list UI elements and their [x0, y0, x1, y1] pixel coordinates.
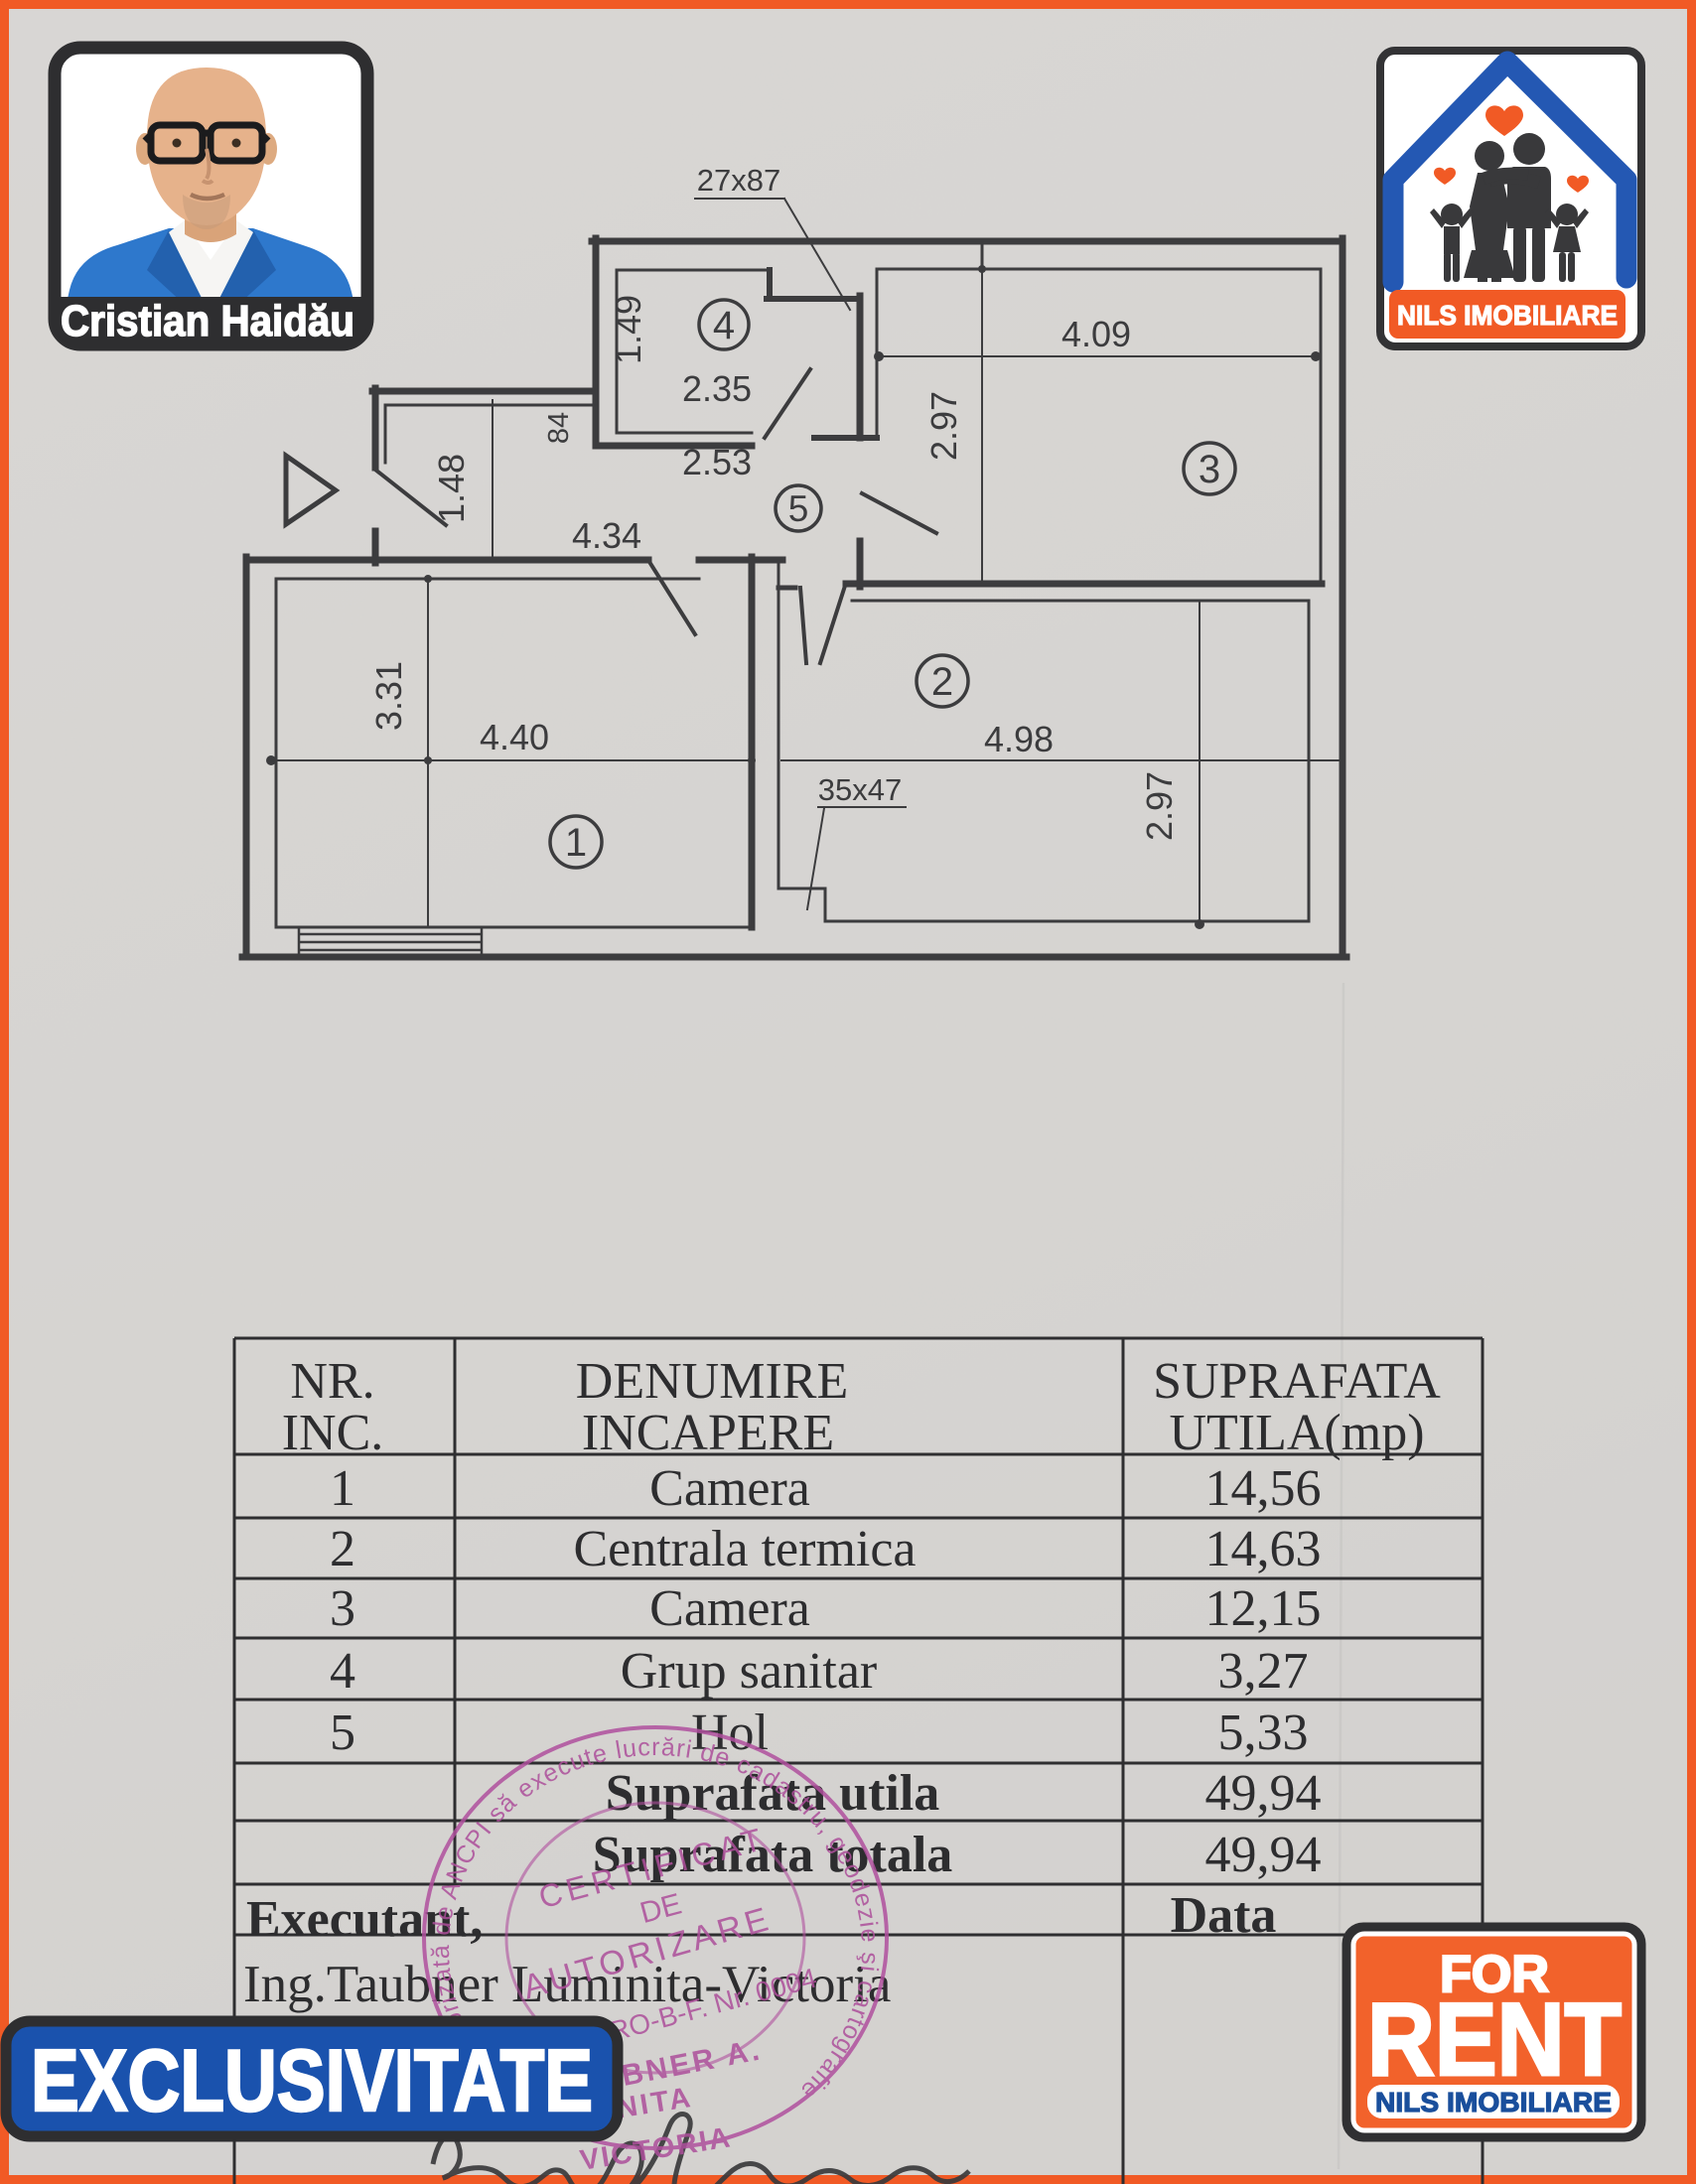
svg-text:4.98: 4.98 — [984, 719, 1054, 759]
svg-text:2.35: 2.35 — [682, 368, 752, 409]
svg-text:Centrala termica: Centrala termica — [573, 1521, 916, 1577]
svg-text:DENUMIRE: DENUMIRE — [576, 1353, 848, 1410]
svg-text:2: 2 — [330, 1521, 355, 1577]
svg-text:3.31: 3.31 — [368, 661, 409, 731]
svg-text:5,33: 5,33 — [1218, 1705, 1309, 1761]
svg-text:Data: Data — [1171, 1887, 1277, 1944]
svg-text:5: 5 — [788, 488, 809, 529]
svg-text:1.49: 1.49 — [608, 295, 648, 364]
svg-text:4.09: 4.09 — [1061, 314, 1131, 354]
svg-text:NR.: NR. — [290, 1353, 374, 1410]
svg-text:5: 5 — [330, 1705, 355, 1761]
svg-text:INC.: INC. — [282, 1405, 384, 1461]
svg-text:SUPRAFATA: SUPRAFATA — [1153, 1353, 1441, 1410]
svg-text:49,94: 49,94 — [1205, 1765, 1322, 1822]
svg-text:3: 3 — [330, 1580, 355, 1637]
svg-text:12,15: 12,15 — [1205, 1580, 1322, 1637]
svg-text:2.53: 2.53 — [682, 442, 752, 482]
svg-text:NILS IMOBILIARE: NILS IMOBILIARE — [1375, 2087, 1612, 2117]
svg-text:3,27: 3,27 — [1218, 1643, 1309, 1700]
svg-text:1: 1 — [330, 1460, 355, 1517]
svg-text:Cristian Haidău: Cristian Haidău — [61, 297, 354, 345]
svg-text:14,63: 14,63 — [1205, 1521, 1322, 1577]
svg-text:27x87: 27x87 — [697, 163, 780, 198]
svg-text:Grup sanitar: Grup sanitar — [621, 1643, 877, 1700]
svg-text:EXCLUSIVITATE: EXCLUSIVITATE — [31, 2031, 593, 2129]
svg-text:Camera: Camera — [649, 1580, 810, 1637]
svg-text:1.48: 1.48 — [431, 454, 472, 523]
svg-text:4: 4 — [330, 1643, 355, 1700]
svg-text:Camera: Camera — [649, 1460, 810, 1517]
svg-text:2.97: 2.97 — [1139, 771, 1180, 841]
svg-text:3: 3 — [1199, 448, 1220, 491]
svg-text:4: 4 — [713, 304, 735, 347]
svg-text:49,94: 49,94 — [1205, 1827, 1322, 1883]
svg-text:2.97: 2.97 — [923, 391, 964, 461]
svg-text:UTILA(mp): UTILA(mp) — [1169, 1405, 1424, 1461]
svg-text:4.34: 4.34 — [572, 515, 641, 556]
svg-text:35x47: 35x47 — [818, 772, 902, 807]
svg-text:2: 2 — [931, 660, 953, 704]
svg-text:NILS IMOBILIARE: NILS IMOBILIARE — [1397, 300, 1618, 331]
svg-text:RENT: RENT — [1367, 1982, 1622, 2098]
svg-text:84: 84 — [543, 412, 575, 444]
svg-text:4.40: 4.40 — [480, 717, 549, 757]
svg-text:1: 1 — [565, 821, 587, 865]
svg-text:14,56: 14,56 — [1205, 1460, 1322, 1517]
svg-text:INCAPERE: INCAPERE — [582, 1405, 834, 1461]
